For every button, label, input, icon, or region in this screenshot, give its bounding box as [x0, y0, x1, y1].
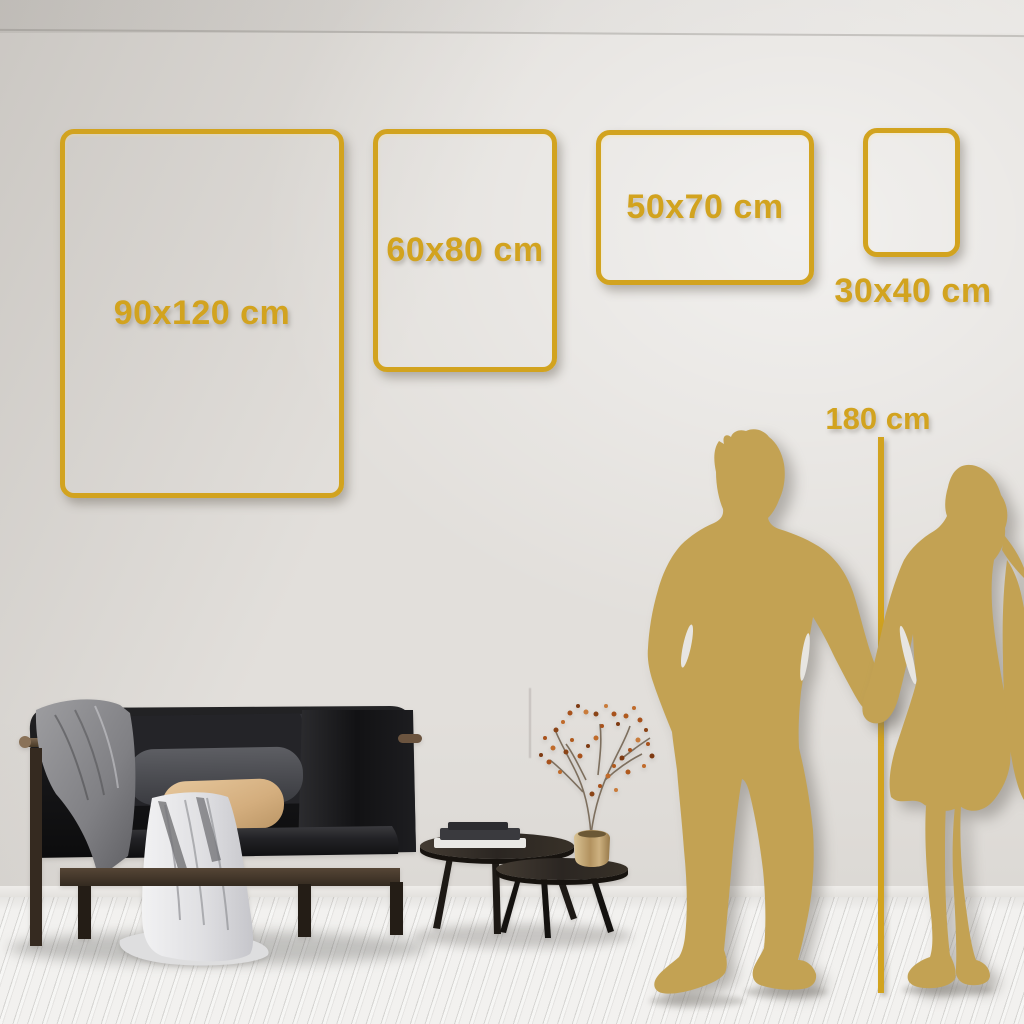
couple-silhouettes — [0, 0, 1024, 1024]
woman-silhouette — [862, 465, 1024, 988]
man-silhouette — [648, 429, 889, 993]
size-guide-scene: 90x120 cm 60x80 cm 50x70 cm 30x40 cm 180… — [0, 0, 1024, 1024]
